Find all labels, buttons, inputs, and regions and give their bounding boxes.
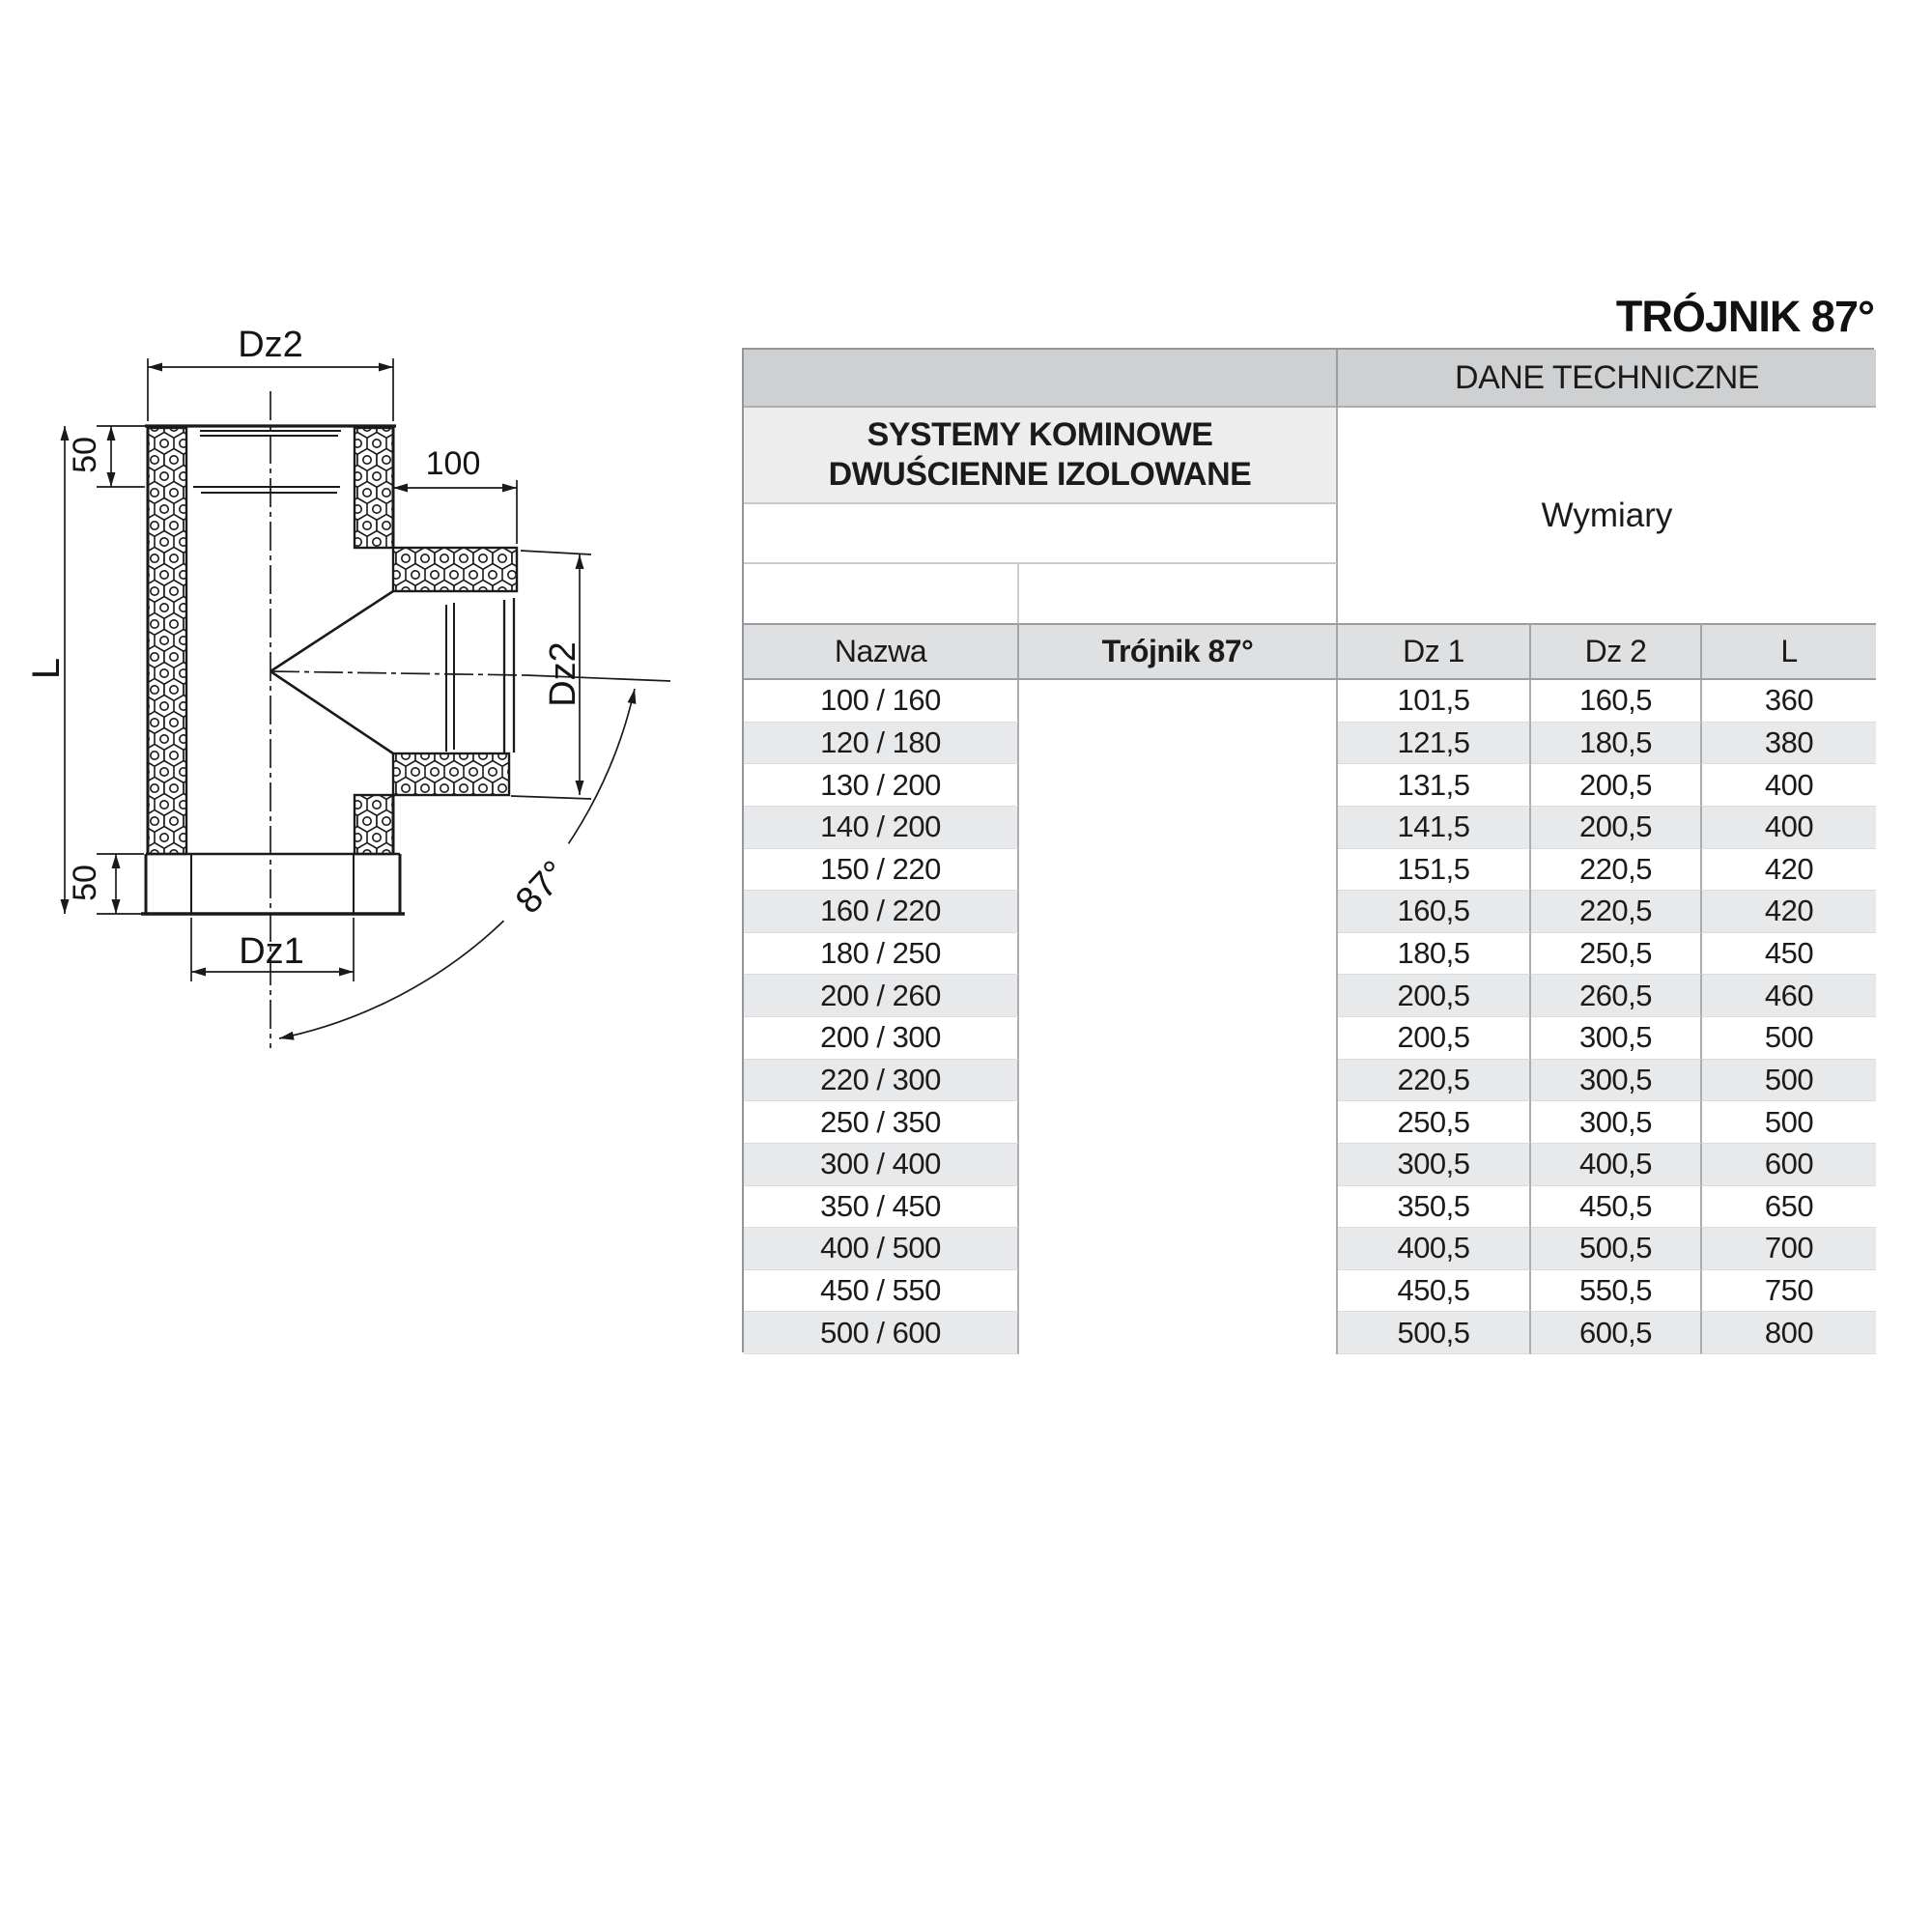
table-row-4-l: 420 [1702, 849, 1876, 892]
table-row-7-l: 460 [1702, 975, 1876, 1017]
table-row-10-dz2: 300,5 [1531, 1101, 1702, 1144]
column-header-l: L [1702, 623, 1876, 680]
table-row-12-dz1: 350,5 [1338, 1186, 1531, 1229]
table-row-6-name: 180 / 250 [744, 933, 1019, 976]
table-row-11-dz2: 400,5 [1531, 1144, 1702, 1186]
table-row-8-l: 500 [1702, 1017, 1876, 1060]
table-row-9-dz1: 220,5 [1338, 1060, 1531, 1102]
table-corner-cell [744, 350, 1338, 408]
table-row-4-name: 150 / 220 [744, 849, 1019, 892]
table-row-9-l: 500 [1702, 1060, 1876, 1102]
table-row-7-name: 200 / 260 [744, 975, 1019, 1017]
table-row-12-dz2: 450,5 [1531, 1186, 1702, 1229]
table-row-2-l: 400 [1702, 764, 1876, 807]
table-row-1-dz2: 180,5 [1531, 723, 1702, 765]
table-row-0-dz2: 160,5 [1531, 680, 1702, 723]
table-row-14-l: 750 [1702, 1270, 1876, 1313]
label-dz1: Dz1 [239, 931, 304, 972]
table-row-6-l: 450 [1702, 933, 1876, 976]
table-row-0-l: 360 [1702, 680, 1876, 723]
label-dz2-branch: Dz2 [543, 641, 583, 707]
table-row-14-name: 450 / 550 [744, 1270, 1019, 1313]
column-header-product: Trójnik 87° [1019, 623, 1338, 680]
table-row-5-dz2: 220,5 [1531, 891, 1702, 933]
table-row-0-dz1: 101,5 [1338, 680, 1531, 723]
label-l: L [25, 658, 68, 679]
table-row-15-l: 800 [1702, 1312, 1876, 1354]
table-row-5-dz1: 160,5 [1338, 891, 1531, 933]
table-row-13-dz1: 400,5 [1338, 1228, 1531, 1270]
table-row-8-name: 200 / 300 [744, 1017, 1019, 1060]
table-row-14-dz2: 550,5 [1531, 1270, 1702, 1313]
table-row-10-name: 250 / 350 [744, 1101, 1019, 1144]
table-row-13-l: 700 [1702, 1228, 1876, 1270]
product-family-header: SYSTEMY KOMINOWE DWUŚCIENNE IZOLOWANE [744, 408, 1338, 504]
spec-table: DANE TECHNICZNE SYSTEMY KOMINOWE DWUŚCIE… [742, 348, 1874, 1352]
table-row-10-dz1: 250,5 [1338, 1101, 1531, 1144]
table-row-5-l: 420 [1702, 891, 1876, 933]
table-row-3-l: 400 [1702, 807, 1876, 849]
table-row-2-dz2: 200,5 [1531, 764, 1702, 807]
table-row-3-dz1: 141,5 [1338, 807, 1531, 849]
pipe-outline [141, 426, 514, 914]
table-row-3-dz2: 200,5 [1531, 807, 1702, 849]
table-row-7-dz1: 200,5 [1338, 975, 1531, 1017]
table-row-10-l: 500 [1702, 1101, 1876, 1144]
table-section-header: DANE TECHNICZNE [1338, 350, 1876, 408]
label-100: 100 [426, 445, 481, 482]
table-row-7-dz2: 260,5 [1531, 975, 1702, 1017]
table-row-14-dz1: 450,5 [1338, 1270, 1531, 1313]
label-50-top: 50 [67, 437, 103, 473]
table-row-4-dz2: 220,5 [1531, 849, 1702, 892]
table-row-3-name: 140 / 200 [744, 807, 1019, 849]
empty-cell [744, 564, 1019, 623]
column-header-name: Nazwa [744, 623, 1019, 680]
table-row-1-dz1: 121,5 [1338, 723, 1531, 765]
product-image-cell [1019, 680, 1338, 1354]
table-row-6-dz1: 180,5 [1338, 933, 1531, 976]
table-row-6-dz2: 250,5 [1531, 933, 1702, 976]
table-row-15-name: 500 / 600 [744, 1312, 1019, 1354]
table-row-8-dz1: 200,5 [1338, 1017, 1531, 1060]
empty-row [744, 504, 1338, 564]
table-row-0-name: 100 / 160 [744, 680, 1019, 723]
table-row-12-l: 650 [1702, 1186, 1876, 1229]
label-dz2-top: Dz2 [238, 325, 303, 365]
product-family-line2: DWUŚCIENNE IZOLOWANE [829, 455, 1252, 495]
table-row-11-l: 600 [1702, 1144, 1876, 1186]
table-row-11-name: 300 / 400 [744, 1144, 1019, 1186]
table-row-1-l: 380 [1702, 723, 1876, 765]
table-row-12-name: 350 / 450 [744, 1186, 1019, 1229]
table-row-13-dz2: 500,5 [1531, 1228, 1702, 1270]
table-row-8-dz2: 300,5 [1531, 1017, 1702, 1060]
column-header-dz2: Dz 2 [1531, 623, 1702, 680]
table-row-9-name: 220 / 300 [744, 1060, 1019, 1102]
table-row-5-name: 160 / 220 [744, 891, 1019, 933]
table-row-4-dz1: 151,5 [1338, 849, 1531, 892]
dimensions-header: Wymiary [1338, 408, 1876, 623]
table-row-1-name: 120 / 180 [744, 723, 1019, 765]
label-50-bottom: 50 [67, 865, 103, 901]
table-row-2-dz1: 131,5 [1338, 764, 1531, 807]
column-header-dz1: Dz 1 [1338, 623, 1531, 680]
table-row-9-dz2: 300,5 [1531, 1060, 1702, 1102]
table-row-15-dz1: 500,5 [1338, 1312, 1531, 1354]
product-family-line1: SYSTEMY KOMINOWE [867, 415, 1213, 455]
tee-fitting-drawing: Dz2 50 100 L Dz2 50 Dz1 87° [0, 261, 734, 1063]
empty-cell [1019, 564, 1338, 623]
table-row-15-dz2: 600,5 [1531, 1312, 1702, 1354]
page: { "page_title": "TRÓJNIK 87°", "diagram"… [0, 0, 1932, 1932]
page-title: TRÓJNIK 87° [1294, 292, 1874, 342]
table-row-13-name: 400 / 500 [744, 1228, 1019, 1270]
table-row-11-dz1: 300,5 [1338, 1144, 1531, 1186]
table-row-2-name: 130 / 200 [744, 764, 1019, 807]
